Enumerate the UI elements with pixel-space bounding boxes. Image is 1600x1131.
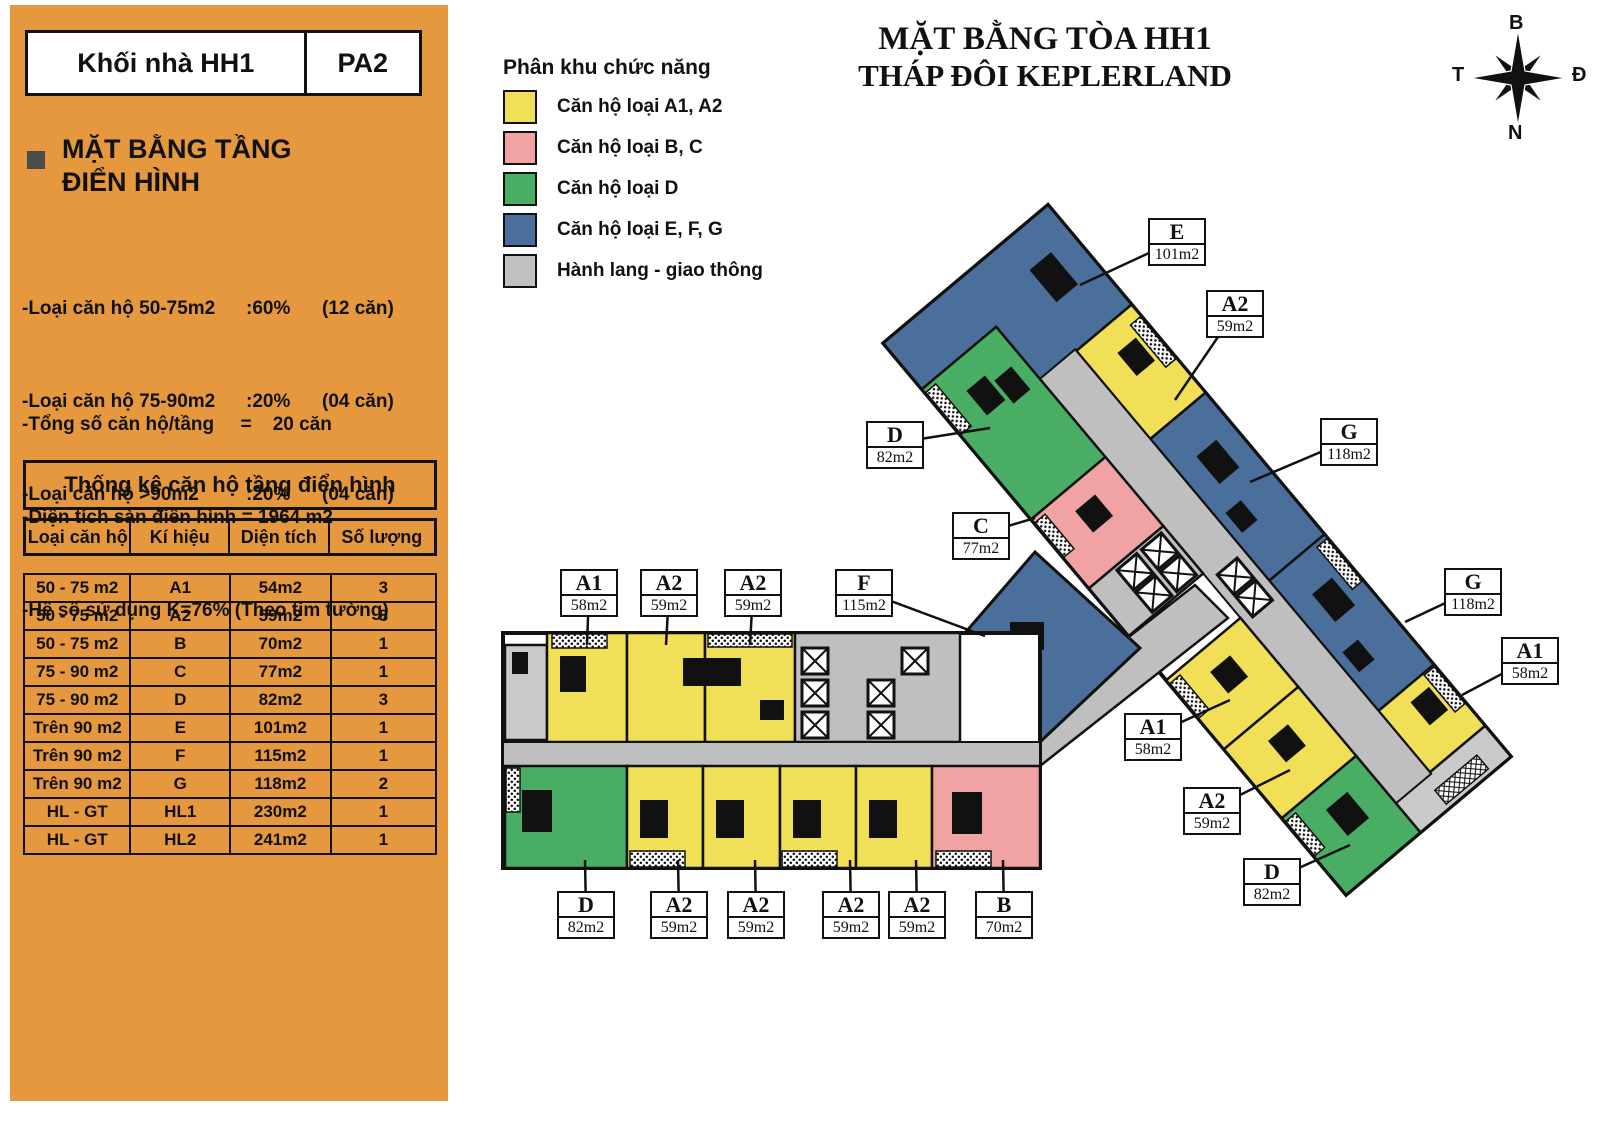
floor-plan-drawing bbox=[0, 0, 1600, 1131]
unit-label-A2: A259m2 bbox=[822, 891, 880, 939]
unit-area: 59m2 bbox=[824, 918, 878, 937]
unit-label-A2: A259m2 bbox=[1183, 787, 1241, 835]
horizontal-wing bbox=[503, 633, 1040, 868]
unit-code: G bbox=[1446, 570, 1500, 595]
unit-code: A2 bbox=[1185, 789, 1239, 814]
unit-code: A2 bbox=[1208, 292, 1262, 317]
unit-area: 82m2 bbox=[1245, 885, 1299, 904]
unit-code: A2 bbox=[652, 893, 706, 918]
unit-code: A2 bbox=[890, 893, 944, 918]
unit-code: A2 bbox=[729, 893, 783, 918]
compass-rose bbox=[1470, 30, 1566, 126]
unit-area: 59m2 bbox=[1185, 814, 1239, 833]
unit-code: F bbox=[837, 571, 891, 596]
unit-label-A2: A259m2 bbox=[888, 891, 946, 939]
unit-code: A1 bbox=[1126, 715, 1180, 740]
unit-area: 118m2 bbox=[1446, 595, 1500, 614]
unit-area: 59m2 bbox=[890, 918, 944, 937]
unit-label-G: G118m2 bbox=[1320, 418, 1378, 466]
unit-code: A2 bbox=[642, 571, 696, 596]
unit-code: D bbox=[1245, 860, 1299, 885]
unit-label-A1: A158m2 bbox=[1124, 713, 1182, 761]
unit-label-A2: A259m2 bbox=[1206, 290, 1264, 338]
unit-label-A2: A259m2 bbox=[724, 569, 782, 617]
unit-area: 59m2 bbox=[652, 918, 706, 937]
unit-area: 58m2 bbox=[1126, 740, 1180, 759]
unit-area: 58m2 bbox=[1503, 664, 1557, 683]
unit-label-B: B70m2 bbox=[975, 891, 1033, 939]
unit-label-D: D82m2 bbox=[866, 421, 924, 469]
unit-code: A1 bbox=[1503, 639, 1557, 664]
unit-code: C bbox=[954, 514, 1008, 539]
unit-label-A2: A259m2 bbox=[650, 891, 708, 939]
unit-code: B bbox=[977, 893, 1031, 918]
unit-code: D bbox=[868, 423, 922, 448]
unit-label-G: G118m2 bbox=[1444, 568, 1502, 616]
unit-label-F: F115m2 bbox=[835, 569, 893, 617]
unit-label-D: D82m2 bbox=[557, 891, 615, 939]
unit-code: A2 bbox=[726, 571, 780, 596]
unit-code: A1 bbox=[562, 571, 616, 596]
unit-area: 115m2 bbox=[837, 596, 891, 615]
unit-area: 59m2 bbox=[729, 918, 783, 937]
unit-code: A2 bbox=[824, 893, 878, 918]
unit-label-E: E101m2 bbox=[1148, 218, 1206, 266]
unit-label-A1: A158m2 bbox=[1501, 637, 1559, 685]
unit-area: 59m2 bbox=[726, 596, 780, 615]
unit-area: 82m2 bbox=[868, 448, 922, 467]
unit-label-A2: A259m2 bbox=[640, 569, 698, 617]
unit-area: 118m2 bbox=[1322, 445, 1376, 464]
unit-code: D bbox=[559, 893, 613, 918]
unit-area: 59m2 bbox=[1208, 317, 1262, 336]
unit-area: 58m2 bbox=[562, 596, 616, 615]
unit-code: G bbox=[1322, 420, 1376, 445]
unit-label-C: C77m2 bbox=[952, 512, 1010, 560]
unit-code: E bbox=[1150, 220, 1204, 245]
unit-area: 82m2 bbox=[559, 918, 613, 937]
unit-area: 101m2 bbox=[1150, 245, 1204, 264]
unit-area: 77m2 bbox=[954, 539, 1008, 558]
page: B Đ N T MẶT BẰNG TÒA HH1 THÁP ĐÔI KEPLER… bbox=[0, 0, 1600, 1131]
unit-area: 59m2 bbox=[642, 596, 696, 615]
unit-label-A2: A259m2 bbox=[727, 891, 785, 939]
unit-label-A1: A158m2 bbox=[560, 569, 618, 617]
unit-label-D: D82m2 bbox=[1243, 858, 1301, 906]
unit-area: 70m2 bbox=[977, 918, 1031, 937]
